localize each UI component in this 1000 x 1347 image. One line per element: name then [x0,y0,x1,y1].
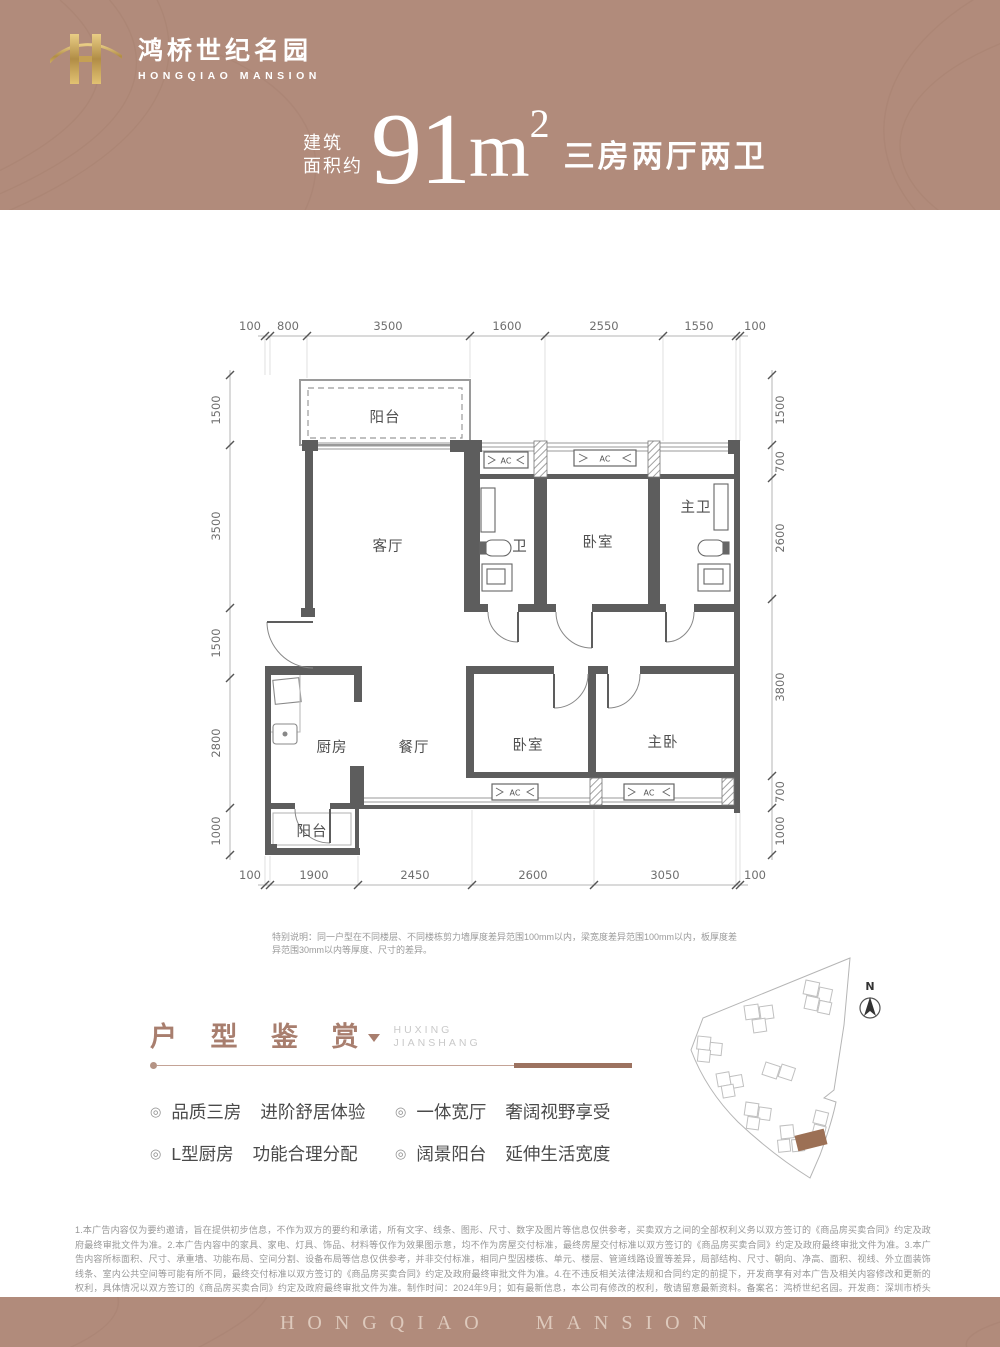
selling-points: ◎ 品质三房 进阶舒居体验 ◎ 一体宽厅 奢阔视野享受 ◎ L型厨房 功能合理分… [150,1099,632,1166]
ac-unit-3: AC [492,784,538,800]
dim-top-4: 2550 [589,319,618,333]
north-needle-icon [864,997,876,1016]
dim-left-0: 1500 [209,395,223,424]
bullet-icon: ◎ [150,1146,161,1162]
dim-bottom-2: 2450 [400,868,429,882]
north-label: N [865,980,874,993]
selling-point-1: ◎ 品质三房 进阶舒居体验 [150,1099,395,1124]
divider-thick-bar [514,1063,632,1068]
dim-right-5: 1000 [773,816,787,845]
dim-right-1: 700 [773,451,787,473]
area-value: 91 [371,108,469,192]
area-unit: m [469,108,530,192]
dim-top-6: 100 [744,319,766,333]
headline: 建筑 面积约 91 m 2 三房两厅两卫 [303,108,768,192]
dim-bottom-4: 3050 [650,868,679,882]
kitchen-fixtures [271,675,301,744]
huxing-divider [150,1062,632,1069]
dim-right-3: 3800 [773,672,787,701]
dim-left-1: 3500 [209,511,223,540]
siteplan-map: N [658,950,993,1215]
dim-top-1: 800 [277,319,299,333]
hatched-piers [534,441,734,805]
bullet-icon: ◎ [395,1104,406,1120]
dim-right-0: 1500 [773,395,787,424]
room-label-master-bath: 主卫 [681,499,712,516]
selling-point-4-desc: 延伸生活宽度 [505,1141,610,1166]
ac-label-1: AC [501,457,512,466]
dim-right-2: 2600 [773,523,787,552]
footer-brand-text: HONGQIAO MANSION [0,1297,1000,1347]
brand-logo: 鸿桥世纪名园 HONGQIAO MANSION [50,28,321,90]
selling-point-3: ◎ 一体宽厅 奢阔视野享受 [395,1099,640,1124]
room-label-kitchen: 厨房 [317,739,348,756]
ac-unit-2: AC [574,450,636,466]
dim-left-2: 1500 [209,628,223,657]
room-label-bath: 卫 [512,539,528,555]
header-band: 鸿桥世纪名园 HONGQIAO MANSION 建筑 面积约 91 m 2 三房… [0,0,1000,210]
brand-name-cn: 鸿桥世纪名园 [138,37,321,65]
triangle-down-icon [368,1034,380,1042]
ac-unit-1: AC [484,452,528,468]
layout-summary: 三房两厅两卫 [564,131,768,176]
area-superscript: 2 [530,104,550,144]
selling-point-1-desc: 进阶舒居体验 [260,1099,365,1124]
selling-point-2-desc: 功能合理分配 [253,1141,358,1166]
dim-bottom-3: 2600 [518,868,547,882]
dim-bottom-5: 100 [744,868,766,882]
room-label-master-bedroom: 主卧 [648,734,679,751]
bullet-icon: ◎ [395,1146,406,1162]
room-label-bedroom-top: 卧室 [583,534,614,551]
dim-left-4: 1000 [209,816,223,845]
room-label-balcony-top: 阳台 [370,409,401,426]
selling-point-1-head: 品质三房 [171,1099,241,1124]
dim-bottom-0: 100 [239,868,261,882]
floorplan-drawing: 100 800 3500 1600 2550 1550 100 100 1900… [200,300,860,960]
ac-unit-4: AC [624,784,674,800]
divider-thin-line [157,1065,514,1066]
huxing-title: 户 型 鉴 赏 [150,1022,372,1052]
dim-bottom-1: 1900 [299,868,328,882]
dim-top-0: 100 [239,319,261,333]
room-label-balcony-bottom: 阳台 [297,823,328,840]
bullet-icon: ◎ [150,1104,161,1120]
dim-left-3: 2800 [209,728,223,757]
selling-point-4-head: 阔景阳台 [416,1141,486,1166]
room-label-living: 客厅 [373,538,404,555]
brand-logo-icon [50,28,122,90]
ac-label-4: AC [644,789,655,798]
selling-point-2-head: L型厨房 [171,1141,233,1166]
ac-label-3: AC [510,789,521,798]
siteplan-buildings [695,980,835,1153]
selling-point-3-desc: 奢阔视野享受 [505,1099,610,1124]
room-label-bedroom-bottom: 卧室 [513,737,544,754]
huxing-section: 户 型 鉴 赏 HUXING JIANSHANG ◎ 品质三房 进阶舒居体验 ◎… [150,1022,632,1166]
north-compass: N [860,980,880,1018]
huxing-subtitle-line2: JIANSHANG [394,1037,481,1050]
selling-point-4: ◎ 阔景阳台 延伸生活宽度 [395,1141,640,1166]
brand-name-en: HONGQIAO MANSION [138,70,321,82]
dim-top-5: 1550 [684,319,713,333]
headline-prefix: 建筑 面积约 [303,132,363,178]
headline-prefix-line1: 建筑 [303,132,363,155]
huxing-subtitle-line1: HUXING [394,1024,481,1037]
poster-page: 鸿桥世纪名园 HONGQIAO MANSION 建筑 面积约 91 m 2 三房… [0,0,1000,1347]
room-label-dining: 餐厅 [399,739,430,756]
huxing-subtitle: HUXING JIANSHANG [394,1024,481,1050]
selling-point-2: ◎ L型厨房 功能合理分配 [150,1141,395,1166]
dim-top-2: 3500 [373,319,402,333]
headline-prefix-line2: 面积约 [303,155,363,178]
divider-dot [150,1062,157,1069]
selling-point-3-head: 一体宽厅 [416,1099,486,1124]
dim-right-4: 700 [773,781,787,803]
ac-label-2: AC [600,455,611,464]
dim-top-3: 1600 [492,319,521,333]
